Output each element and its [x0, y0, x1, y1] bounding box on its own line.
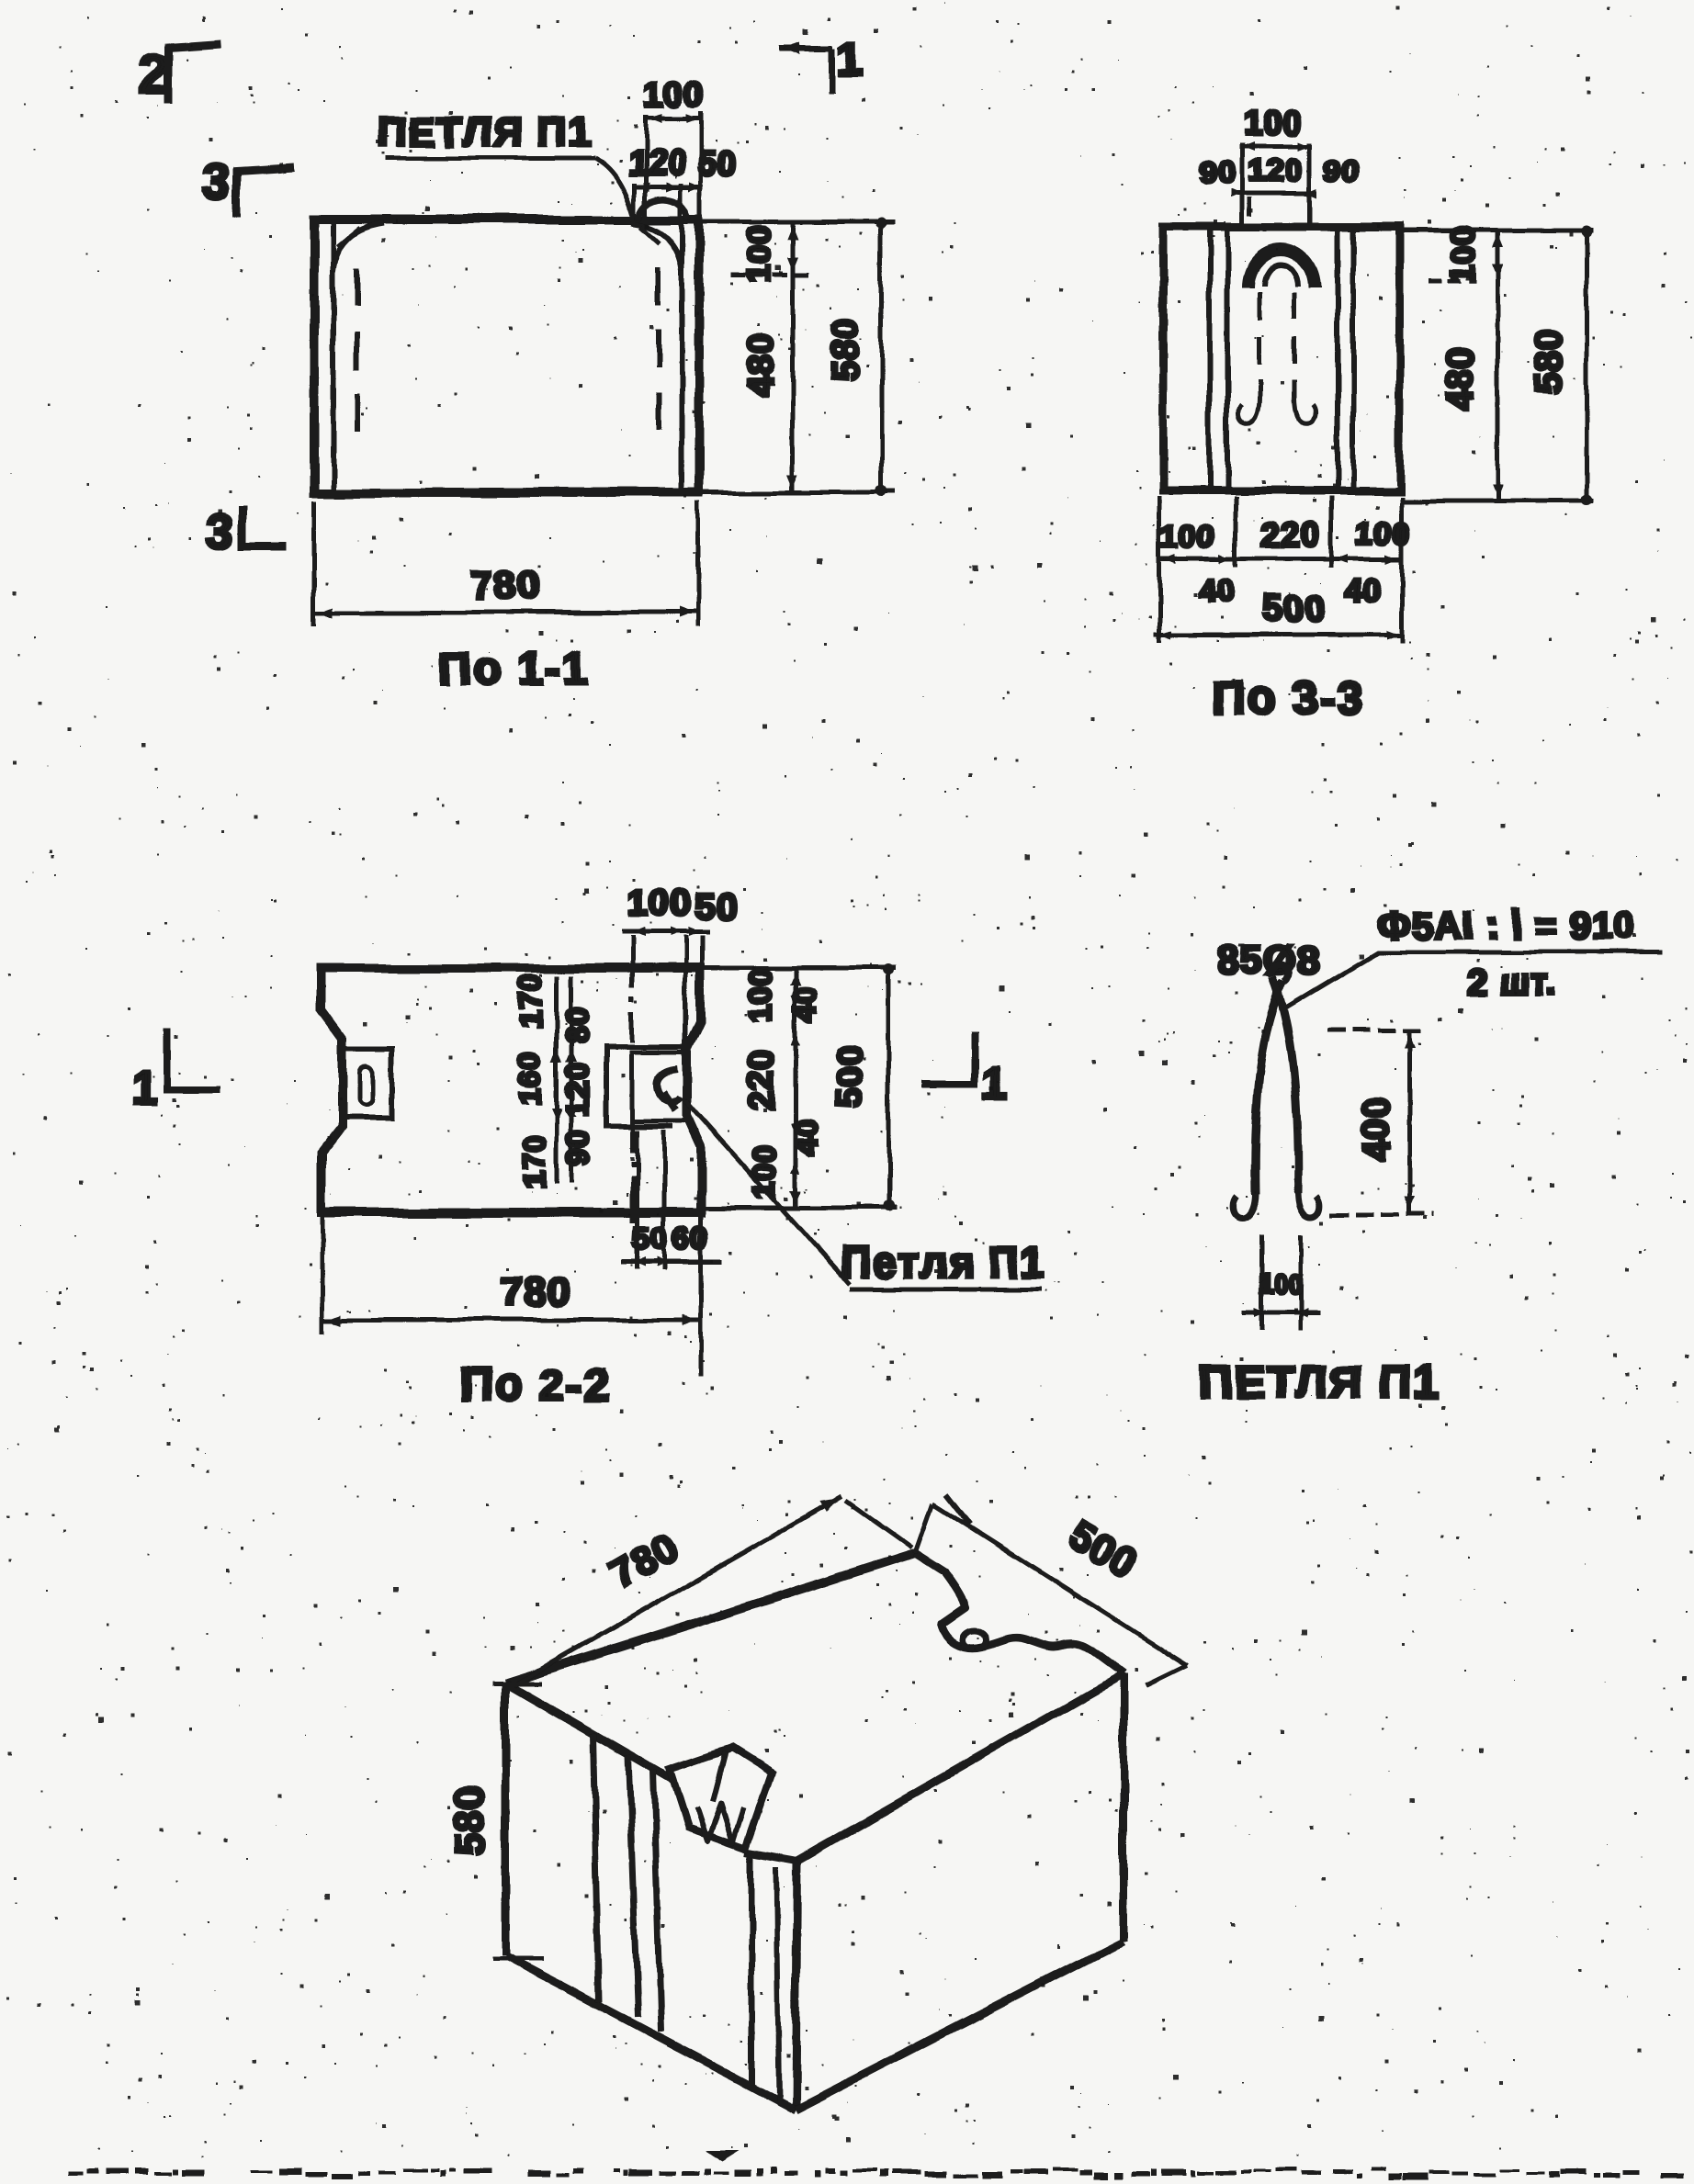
- svg-text:50: 50: [695, 886, 738, 927]
- svg-text:90: 90: [561, 1130, 596, 1166]
- svg-text:100: 100: [1244, 104, 1302, 141]
- svg-text:100: 100: [644, 76, 705, 115]
- svg-text:170: 170: [517, 1134, 552, 1189]
- svg-text:ПЕТЛЯ П1: ПЕТЛЯ П1: [378, 109, 593, 154]
- svg-text:480: 480: [1440, 346, 1481, 411]
- svg-text:170: 170: [514, 974, 548, 1029]
- svg-text:60: 60: [672, 1221, 709, 1256]
- svg-text:580: 580: [825, 317, 865, 381]
- svg-text:Петля П1: Петля П1: [841, 1238, 1045, 1286]
- svg-text:100: 100: [627, 883, 692, 923]
- svg-text:90: 90: [1323, 154, 1360, 189]
- svg-text:100: 100: [1258, 1270, 1304, 1299]
- svg-text:100: 100: [1356, 517, 1411, 552]
- svg-text:400: 400: [1357, 1097, 1397, 1161]
- svg-text:85Ø8: 85Ø8: [1217, 938, 1320, 983]
- svg-text:3: 3: [202, 154, 231, 209]
- svg-text:50: 50: [698, 144, 737, 182]
- svg-text:40: 40: [1345, 574, 1382, 609]
- svg-text:160: 160: [513, 1051, 548, 1106]
- svg-text:120: 120: [1248, 153, 1303, 188]
- svg-text:По 1-1: По 1-1: [439, 643, 591, 694]
- svg-text:500: 500: [1262, 589, 1327, 629]
- svg-text:120: 120: [628, 144, 686, 182]
- svg-text:120: 120: [560, 1062, 595, 1117]
- svg-text:500: 500: [830, 1044, 870, 1109]
- svg-text:100: 100: [1444, 225, 1482, 283]
- svg-text:220: 220: [742, 1050, 781, 1110]
- svg-text:40: 40: [788, 986, 823, 1023]
- svg-text:40: 40: [790, 1118, 825, 1154]
- svg-text:ПЕТЛЯ П1: ПЕТЛЯ П1: [1199, 1357, 1440, 1408]
- svg-text:2 шт.: 2 шт.: [1467, 962, 1558, 1002]
- svg-text:90: 90: [1200, 155, 1237, 190]
- svg-text:780: 780: [502, 1269, 571, 1314]
- svg-text:1: 1: [981, 1057, 1008, 1109]
- svg-text:Ф5АI : l = 910: Ф5АI : l = 910: [1377, 904, 1636, 947]
- svg-text:780: 780: [470, 563, 540, 608]
- svg-text:По 2-2: По 2-2: [460, 1359, 612, 1411]
- svg-text:40: 40: [1198, 574, 1235, 609]
- svg-text:1: 1: [132, 1063, 159, 1114]
- svg-text:100: 100: [744, 968, 779, 1023]
- svg-text:1: 1: [836, 33, 864, 86]
- svg-text:100: 100: [1161, 520, 1216, 555]
- svg-text:100: 100: [740, 224, 777, 282]
- svg-text:480: 480: [740, 332, 781, 397]
- svg-text:580: 580: [447, 1785, 492, 1855]
- svg-text:580: 580: [1529, 329, 1569, 393]
- svg-text:220: 220: [1260, 516, 1321, 555]
